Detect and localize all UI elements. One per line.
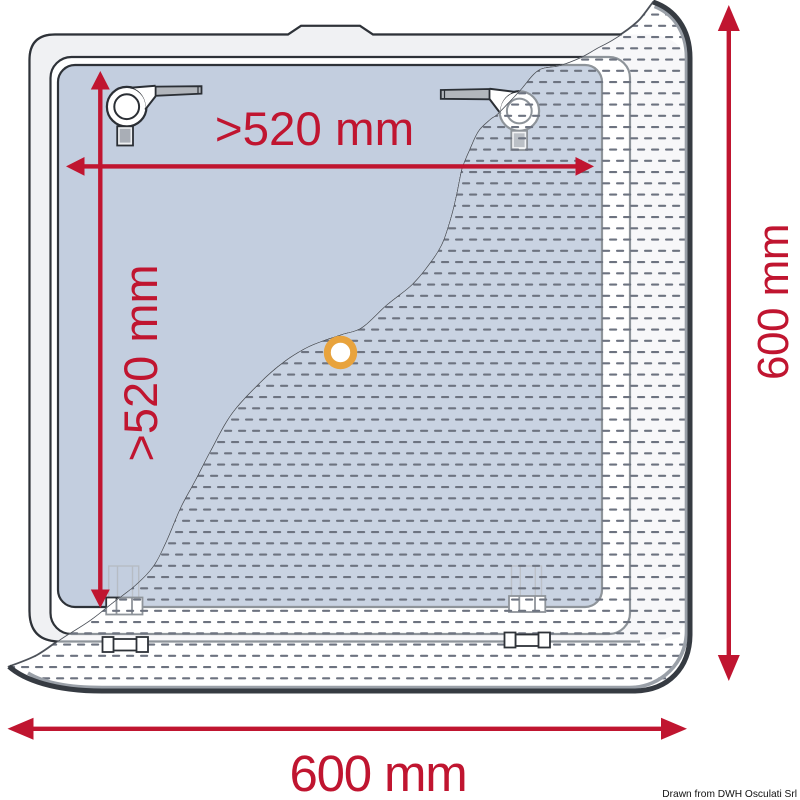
svg-text:600 mm: 600 mm <box>289 745 466 800</box>
svg-text:600 mm: 600 mm <box>749 224 798 380</box>
svg-text:>520 mm: >520 mm <box>114 264 167 461</box>
svg-text:Drawn from DWH Osculati Srl: Drawn from DWH Osculati Srl <box>662 789 797 800</box>
svg-text:>520 mm: >520 mm <box>215 103 414 156</box>
